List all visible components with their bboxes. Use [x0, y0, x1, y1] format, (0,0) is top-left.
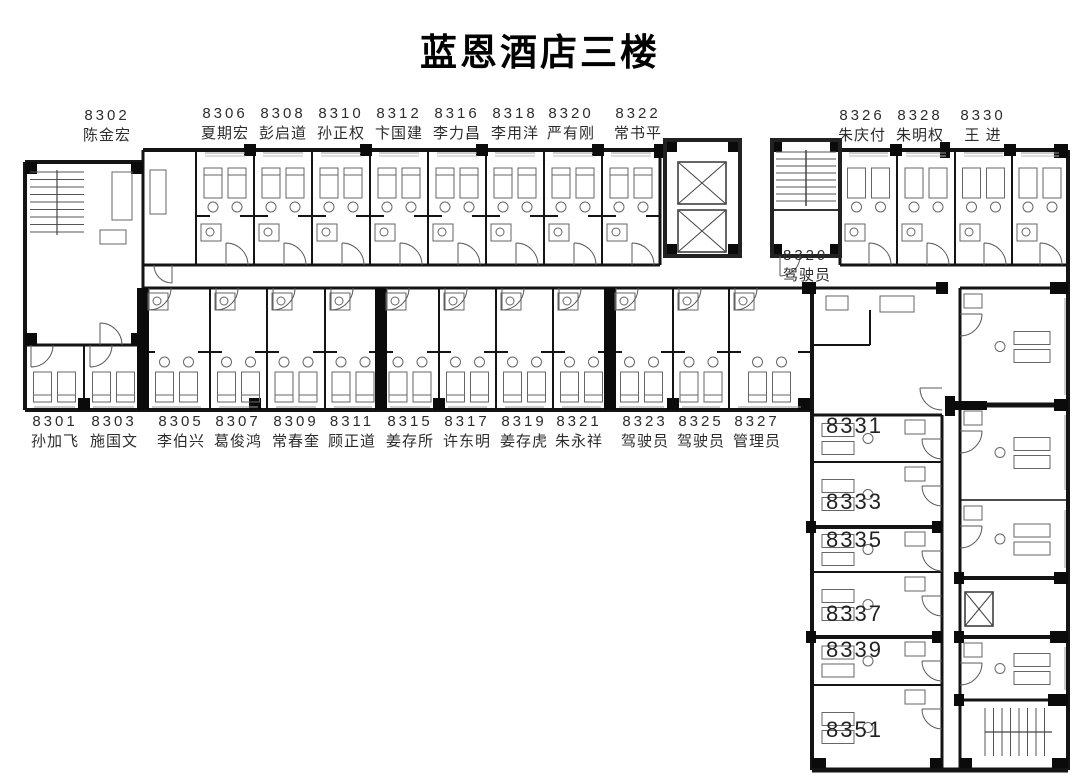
room-label-8351: 8351: [826, 718, 896, 742]
room-number: 8337: [826, 602, 896, 626]
room-number: 8335: [826, 528, 896, 552]
room-label-8320: 8320严有刚: [533, 104, 609, 144]
occupant-name: 陈金宏: [69, 126, 145, 146]
occupant-name: 管理员: [719, 432, 795, 452]
room-label-8302: 8302陈金宏: [69, 106, 145, 146]
occupant-name: 王 进: [945, 126, 1021, 146]
furniture-icons: [34, 168, 1062, 744]
room-label-8330: 8330王 进: [945, 106, 1021, 146]
room-number: 8351: [826, 718, 896, 742]
room-label-8327: 8327管理员: [719, 412, 795, 452]
room-label-8322: 8322常书平: [600, 104, 676, 144]
room-label-8331: 8331: [826, 414, 896, 438]
room-label-8337: 8337: [826, 602, 896, 626]
room-number: 8327: [719, 412, 795, 432]
room-label-8329: 8329驾驶员: [783, 246, 867, 286]
room-number: 8333: [826, 490, 896, 514]
room-number: 8339: [826, 638, 896, 662]
room-label-8321: 8321朱永祥: [541, 412, 617, 452]
structural-columns: [25, 140, 1068, 768]
elevator-icon: [665, 140, 993, 626]
room-number: 8321: [541, 412, 617, 432]
room-number: 8330: [945, 106, 1021, 126]
room-number: 8329: [783, 246, 867, 266]
room-number: 8302: [69, 106, 145, 126]
page-title: 蓝恩酒店三楼: [0, 22, 1080, 76]
floorplan-page: 蓝恩酒店三楼 8302陈金宏 8306夏期宏 8308彭启道 8310孙正权 8…: [0, 0, 1080, 778]
room-label-8335: 8335: [826, 528, 896, 552]
room-label-8303: 8303施国文: [76, 412, 152, 452]
room-number: 8322: [600, 104, 676, 124]
room-number: 8303: [76, 412, 152, 432]
occupant-name: 施国文: [76, 432, 152, 452]
room-number: 8331: [826, 414, 896, 438]
room-number: 8320: [533, 104, 609, 124]
occupant-name: 常书平: [600, 124, 676, 144]
occupant-name: 驾驶员: [783, 266, 867, 286]
occupant-name: 朱永祥: [541, 432, 617, 452]
room-label-8333: 8333: [826, 490, 896, 514]
walls: [25, 150, 1068, 770]
room-label-8339: 8339: [826, 638, 896, 662]
occupant-name: 严有刚: [533, 124, 609, 144]
